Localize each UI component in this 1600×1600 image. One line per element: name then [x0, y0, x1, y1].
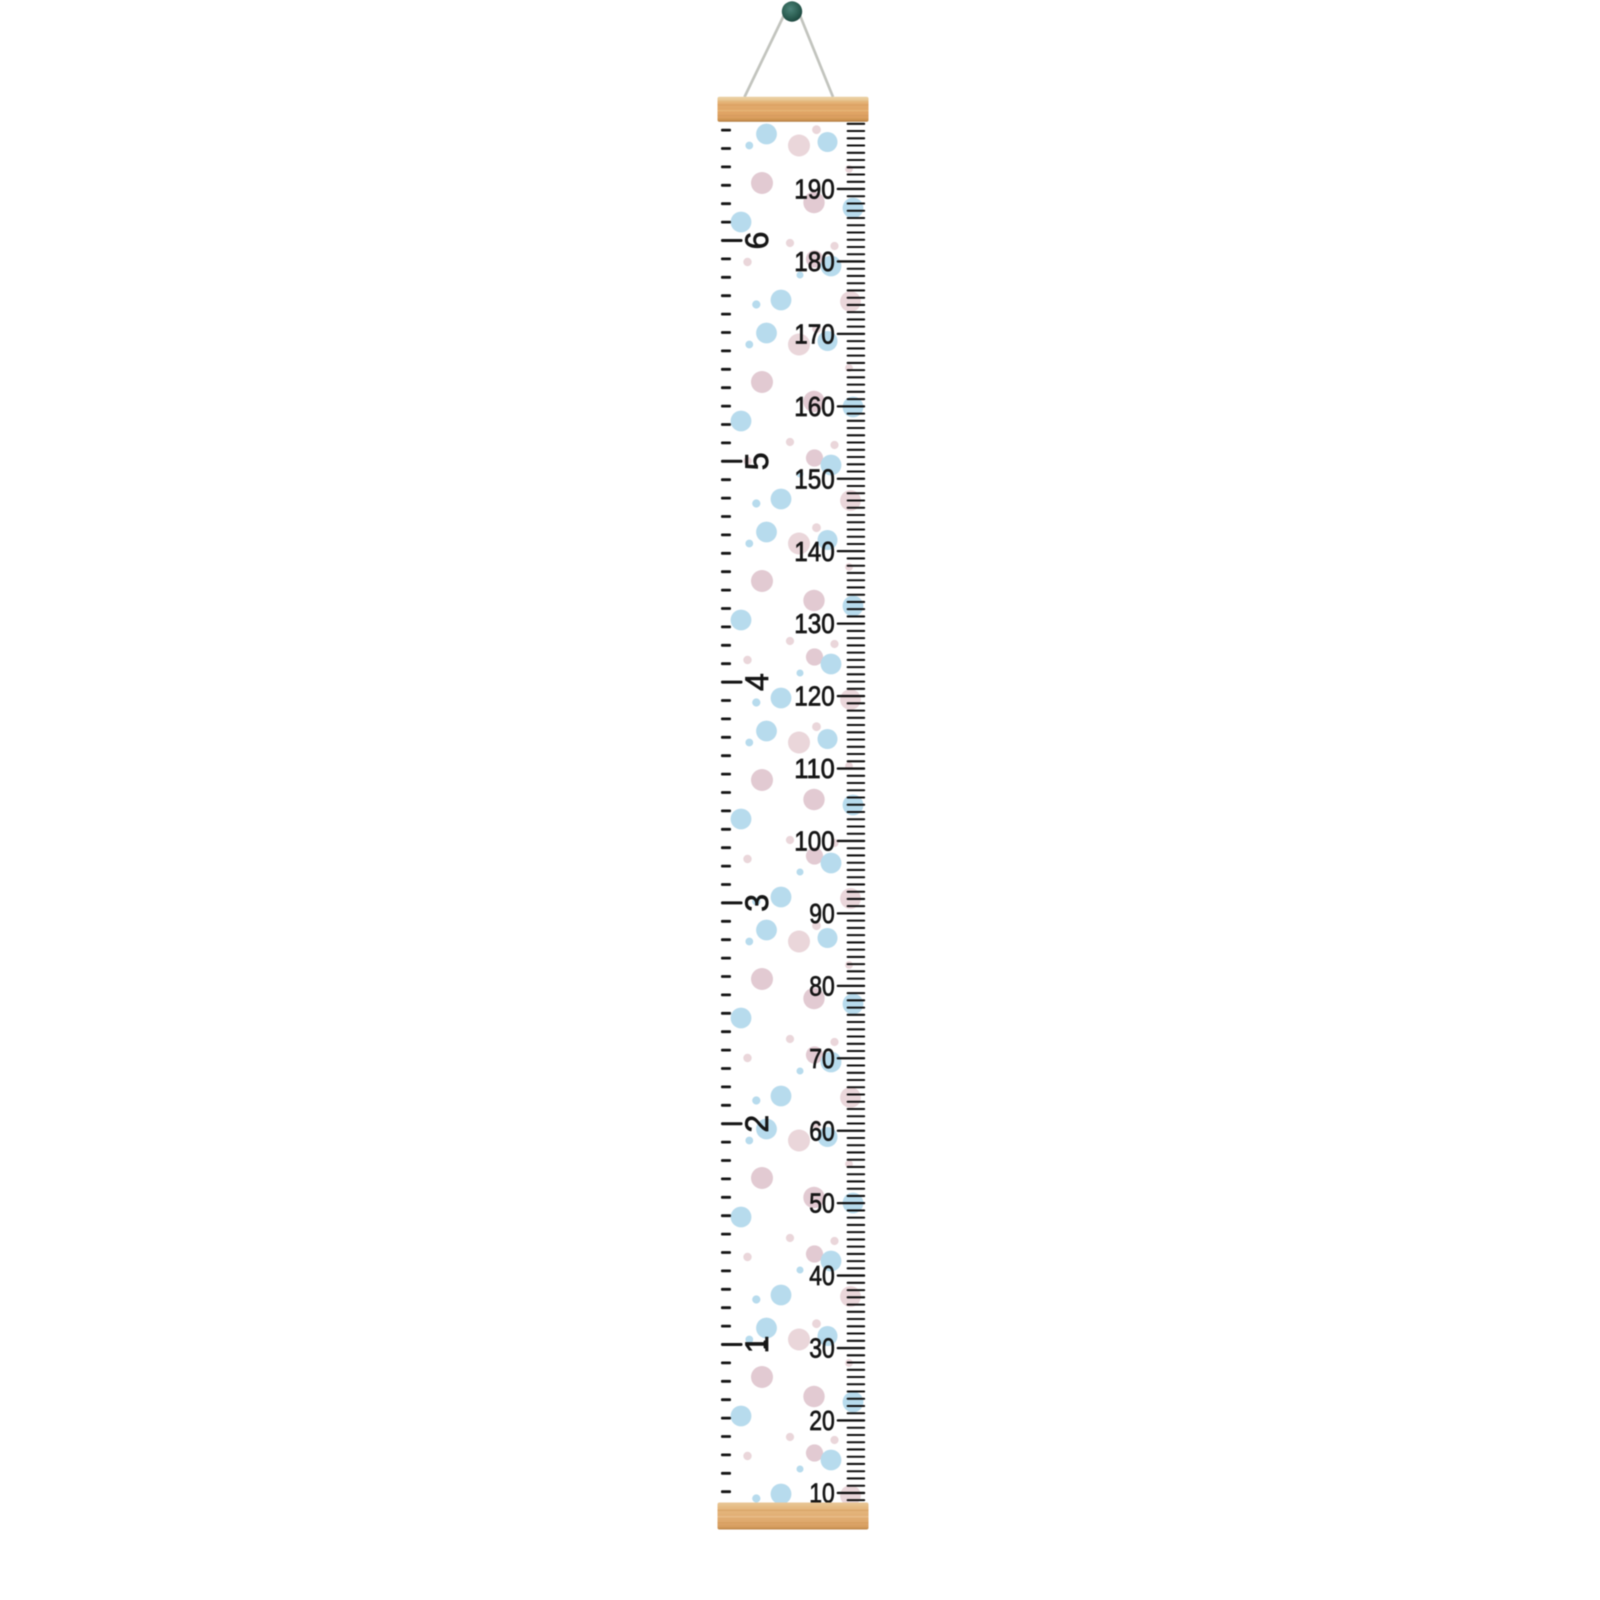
svg-text:6: 6 [739, 232, 775, 250]
svg-text:30: 30 [809, 1333, 835, 1364]
svg-text:150: 150 [794, 463, 835, 494]
svg-text:100: 100 [794, 826, 835, 857]
svg-text:5: 5 [739, 452, 775, 470]
svg-text:190: 190 [794, 174, 835, 205]
svg-text:50: 50 [809, 1188, 835, 1219]
svg-text:2: 2 [739, 1115, 775, 1133]
svg-text:130: 130 [794, 608, 835, 639]
svg-text:4: 4 [739, 673, 775, 691]
svg-text:1: 1 [739, 1336, 775, 1354]
svg-text:180: 180 [794, 246, 835, 277]
svg-text:160: 160 [794, 391, 835, 422]
svg-text:90: 90 [809, 898, 835, 929]
svg-text:120: 120 [794, 681, 835, 712]
svg-text:110: 110 [794, 753, 835, 784]
svg-text:140: 140 [794, 536, 835, 567]
svg-text:60: 60 [809, 1115, 835, 1146]
svg-text:3: 3 [739, 894, 775, 912]
svg-text:80: 80 [809, 970, 835, 1001]
svg-text:70: 70 [809, 1043, 835, 1074]
svg-text:170: 170 [794, 319, 835, 350]
svg-text:20: 20 [809, 1405, 835, 1436]
svg-text:40: 40 [809, 1260, 835, 1291]
